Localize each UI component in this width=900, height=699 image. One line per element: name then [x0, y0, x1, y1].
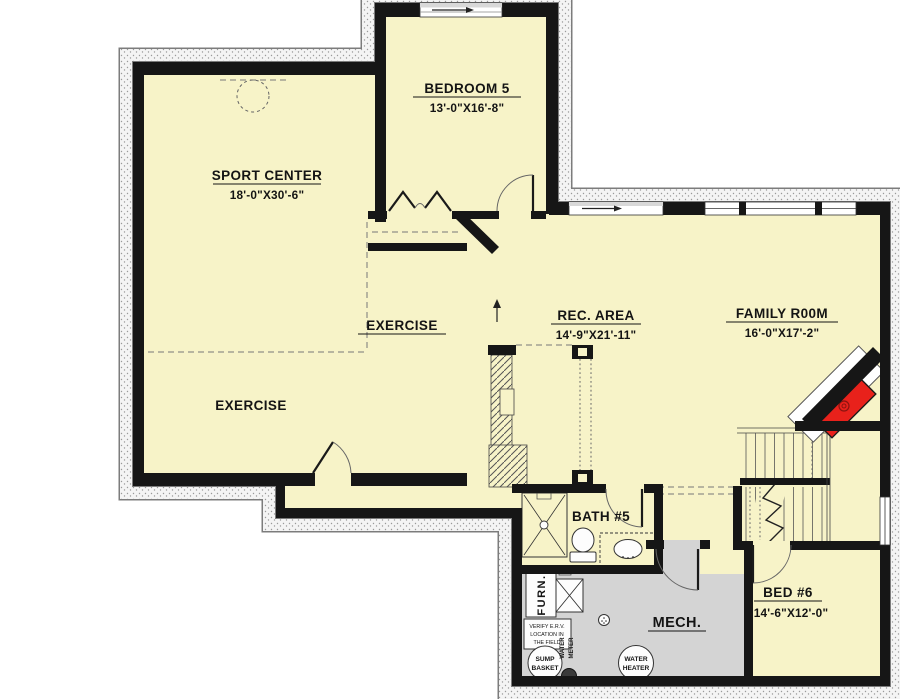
label-bed6: BED #6: [763, 585, 813, 600]
window-right-wall: [880, 497, 890, 545]
dims-family-room: 16'-0"X17'-2": [745, 326, 820, 340]
label-mech: MECH.: [653, 615, 702, 631]
floor-drain: [599, 615, 610, 626]
label-bedroom5: BEDROOM 5: [424, 81, 509, 96]
svg-text:THE FIELD: THE FIELD: [533, 640, 560, 646]
furnace-label: FURN.: [536, 574, 548, 615]
svg-text:BASKET: BASKET: [531, 665, 558, 672]
label-family-room: FAMILY R00M: [736, 306, 828, 321]
dims-sport-center: 18'-0"X30'-6": [230, 188, 305, 202]
label-exercise-lower: EXERCISE: [215, 398, 286, 413]
svg-text:WATER: WATER: [624, 656, 648, 663]
dims-bed6: 14'-6"X12'-0": [754, 606, 829, 620]
label-bath5: BATH #5: [572, 509, 630, 524]
svg-text:HEATER: HEATER: [623, 665, 650, 672]
sump-basket: SUMP BASKET: [528, 646, 562, 680]
svg-text:METER: METER: [569, 637, 575, 659]
egress-window-bedroom5: [420, 3, 502, 17]
toilet: [570, 528, 596, 562]
dims-rec-area: 14'-9"X21'-11": [556, 328, 637, 342]
label-sport-center: SPORT CENTER: [212, 168, 323, 183]
dims-bedroom5: 13'-0"X16'-8": [430, 101, 505, 115]
egress-window-rec: [569, 202, 663, 215]
window-band-family: [705, 202, 856, 215]
svg-text:SUMP: SUMP: [535, 656, 555, 663]
floor-plan: FURN. VERIFY E.R.V. LOCATION IN THE FIEL…: [0, 0, 900, 699]
floor-plan-svg: FURN. VERIFY E.R.V. LOCATION IN THE FIEL…: [0, 0, 900, 699]
label-exercise-upper: EXERCISE: [366, 318, 437, 333]
water-heater: WATER HEATER: [619, 646, 654, 681]
svg-text:VERIFY E.R.V.: VERIFY E.R.V.: [529, 624, 564, 630]
svg-text:LOCATION IN: LOCATION IN: [530, 632, 564, 638]
label-rec-area: REC. AREA: [557, 308, 634, 323]
svg-text:WATER: WATER: [560, 637, 566, 659]
